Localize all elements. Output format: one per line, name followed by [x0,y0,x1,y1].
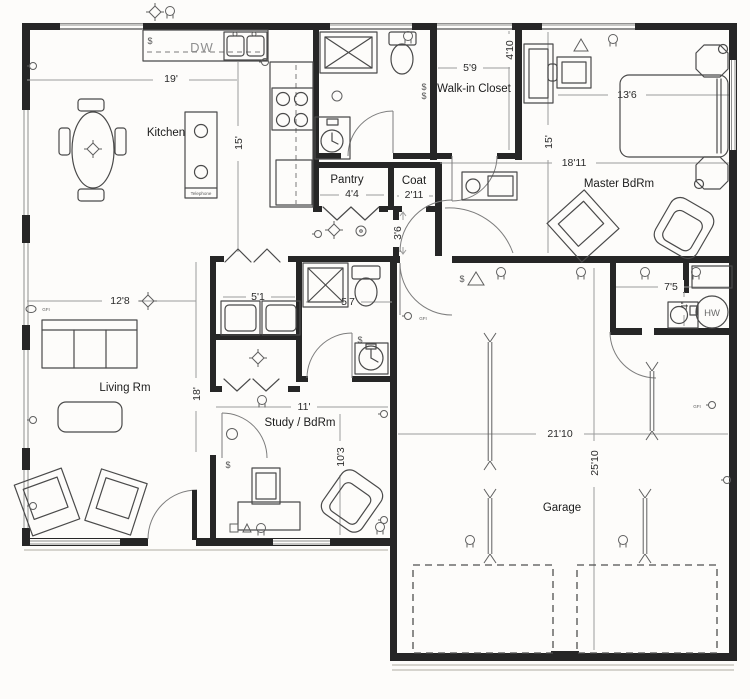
coat-label: Coat [402,175,427,187]
door-garage-entry [400,263,452,315]
garage-label: Garage [543,502,581,514]
utility-closet: HW [668,266,732,328]
door-master-bedroom [445,208,513,253]
dim-master-width: 18'11 [562,157,587,169]
window [22,350,31,448]
walkin-closet-label: Walk-in Closet [437,83,512,95]
window [330,24,412,30]
light-symbol [577,268,586,280]
thermostat-triangle-symbol [574,39,588,51]
vanity-sink [315,117,350,159]
site-lines [24,550,734,670]
wall-coat-right [435,162,442,256]
wall-bath2-bottom [352,376,396,382]
refrigerator [276,160,312,205]
ceiling-light-symbol [325,221,343,239]
ceiling-light-symbol [146,3,164,21]
ceiling-light-symbol [249,349,267,367]
door-master-bath [348,111,393,156]
light-symbol [227,429,238,440]
wall-utility-bottom [654,328,737,335]
wall-utility-left [610,263,616,332]
wall-pantry-top [313,162,442,168]
laundry [221,301,300,335]
switch-symbol: $ [225,460,230,470]
door-front-entry [148,490,197,539]
dim-utility-width: 7'5 [664,281,678,293]
kitchen: DW Telephone [59,30,313,207]
armchair [650,193,718,262]
master-bedroom-label: Master BdRm [584,178,654,190]
wall-pantry-coat-divider [388,162,394,210]
garage-track [484,489,496,563]
light-symbol [466,536,475,548]
windows [22,24,737,546]
window [22,470,31,528]
outlet-symbol [378,411,388,418]
bifold-hall-closet [224,379,279,391]
garage-track [484,333,496,470]
wall-laundry-left [210,256,216,386]
door-study [222,413,267,458]
gfi-label: GFI [693,404,701,409]
outlet-symbol [312,231,322,238]
thermostat-symbol [356,226,366,236]
floor-plan: 19' 15' 5'9 4'10 13'6 15' 18'11 4'4 2'11… [0,0,750,699]
dining-table [59,99,126,201]
island-note: Telephone [191,191,212,196]
wall-garage-left [390,256,397,661]
master-bath [315,32,416,159]
light-symbol [332,91,342,101]
bed [620,75,728,157]
outlet-symbol [402,313,412,320]
kitchen-sink [224,32,267,60]
bifold-laundry [225,249,280,262]
window [60,24,143,30]
living-room-label: Living Rm [99,382,150,394]
desk-chair [548,57,591,88]
sink [355,343,388,374]
switch-symbol: $ [459,274,464,284]
floor-plan-drawing: 19' 15' 5'9 4'10 13'6 15' 18'11 4'4 2'11… [0,0,750,699]
dim-master-depth: 15' [543,135,555,149]
nightstand [695,157,729,189]
armchair [85,469,147,535]
thermostat-triangle-symbol [468,272,484,285]
dim-living-width: 12'8 [110,295,130,307]
light-symbol [497,268,506,280]
wall-study-left [210,455,216,538]
dim-living-depth: 18' [191,387,203,401]
window [30,539,120,545]
shelf [692,266,732,288]
window [730,60,736,150]
wall-bath1-left [313,30,319,212]
garage-track [646,362,658,440]
dim-pantry-width: 4'4 [345,188,359,200]
light-symbol [376,523,385,535]
wall-bath2-left [296,256,302,382]
gfi-label: GFI [419,316,427,321]
light-symbol [641,268,650,280]
gfi-label: GFI [42,307,50,312]
outlet-symbol [706,402,716,409]
wall-closet-left [430,30,437,160]
garage-track [639,489,651,563]
water-heater: HW [696,296,728,328]
stove [272,88,313,130]
dim-garage-width: 21'10 [547,428,573,440]
window [22,110,31,215]
switch-symbol: $ [357,335,362,345]
light-symbol [258,396,267,408]
light-symbol [619,536,628,548]
garage-door-opening [413,565,553,653]
front-door-leaf [192,490,197,540]
shower [320,32,377,73]
dim-garage-depth: 25'10 [589,450,601,476]
desk [238,502,300,530]
ceiling-light-symbol [84,140,102,158]
pantry-label: Pantry [330,174,363,186]
tv-stand [462,172,517,200]
dim-kitchen-depth: 15' [233,136,245,150]
garage: Garage [413,333,717,653]
light-symbol [404,32,413,44]
window [437,24,512,30]
dishwasher-label: DW [190,40,214,55]
coffee-table [58,402,122,432]
switch-symbol: $ [147,36,152,46]
wall-closet-right [515,30,522,160]
dim-coat-width: 2'11 [405,189,424,201]
switch-symbol: $ [421,91,426,101]
dim-closet-depth: 4'10 [504,40,516,60]
bifold-pantry [323,207,379,220]
shower [303,263,348,307]
window [273,539,330,545]
window [542,24,635,30]
armchair [547,190,619,262]
kitchen-island: Telephone [185,112,217,198]
kitchen-label: Kitchen [147,127,185,139]
sofa [42,320,137,368]
electrical-symbols: GFI GFI GFI $ $ $ $ $ $ [26,3,731,548]
wall-garage-pier [551,651,579,661]
light-symbol [609,35,618,47]
armoire [524,44,553,103]
desk-chair [252,468,280,504]
dim-study-width: 11' [298,401,311,413]
door-bath2 [307,333,352,378]
wall-bath2-top [288,256,396,262]
garage-door-opening [577,565,717,653]
light-symbol [166,7,175,19]
door-utility [610,332,656,378]
water-heater-label: HW [704,308,720,319]
light-symbol [692,268,701,280]
nightstand [696,45,728,78]
study-label: Study / BdRm [265,417,336,429]
dim-closet-width: 5'9 [463,62,477,74]
study: Study / BdRm [230,417,387,536]
bath2 [303,263,388,374]
dimensions: 19' 15' 5'9 4'10 13'6 15' 18'11 4'4 2'11… [27,31,729,650]
dim-kitchen-width: 19' [164,73,178,85]
dim-study-depth: 10'3 [335,447,347,467]
